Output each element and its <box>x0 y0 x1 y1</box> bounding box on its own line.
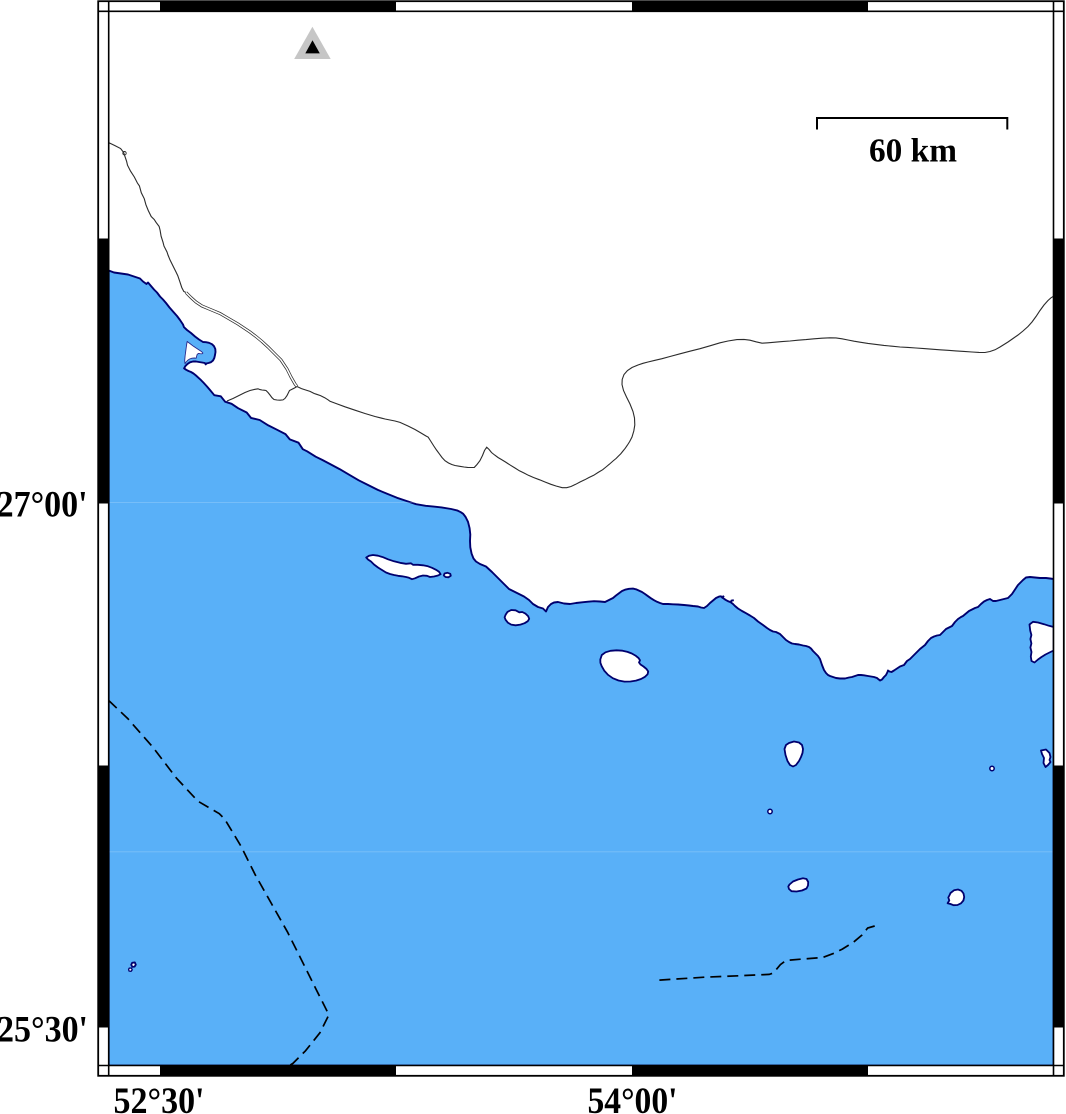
svg-text:52°30': 52°30' <box>114 1081 205 1114</box>
svg-text:27°00': 27°00' <box>0 485 88 526</box>
svg-text:60 km: 60 km <box>869 133 957 170</box>
svg-text:25°30': 25°30' <box>0 1010 88 1051</box>
svg-text:54°00': 54°00' <box>588 1081 678 1114</box>
